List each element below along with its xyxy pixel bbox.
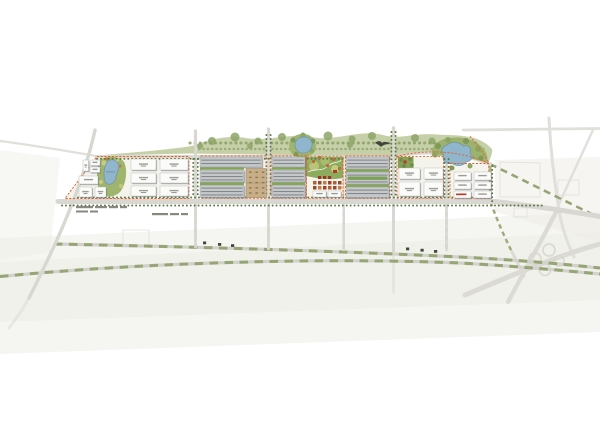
- annotation-text-smudges-rect: [181, 213, 188, 215]
- hall-stripe: [273, 188, 303, 189]
- hall-stripe: [273, 176, 303, 177]
- belt-tree-texture-circle: [368, 132, 376, 140]
- hall-stripe: [201, 173, 242, 174]
- belt-tree-texture-circle: [208, 137, 216, 145]
- grid-cell: [262, 172, 265, 173]
- avenue-dark-marks-rect: [218, 243, 221, 246]
- avenue-dark-marks-rect: [434, 250, 437, 253]
- building-label-mark: [170, 177, 179, 178]
- building-label-mark: [478, 184, 487, 185]
- building-label-mark: [405, 172, 414, 173]
- building-label-mark: [139, 190, 148, 191]
- site-plan-map: [0, 0, 600, 424]
- annotation-text-smudges-rect: [76, 211, 88, 213]
- hall-stripe: [347, 190, 387, 191]
- building-label-mark: [407, 175, 412, 176]
- roof-garden-strips-rect: [272, 182, 305, 185]
- building-label-mark: [458, 184, 467, 185]
- building-label-mark: [431, 175, 436, 176]
- park-greens-circle: [445, 137, 451, 143]
- roof-garden-strips-rect: [200, 167, 244, 169]
- park-greens-circle: [399, 158, 403, 162]
- red-plan-marks: [456, 194, 466, 196]
- campus-cells-rect: [332, 158, 335, 161]
- grid-cell: [318, 181, 322, 185]
- hall-footprint: [272, 157, 305, 167]
- building-label-mark: [141, 179, 146, 180]
- building-label-mark: [84, 164, 87, 165]
- belt-tree-texture-circle: [255, 138, 262, 145]
- belt-tree-texture-circle: [411, 134, 419, 142]
- grid-cell: [318, 186, 322, 190]
- annotation-text-smudges-rect: [90, 211, 98, 213]
- grid-cell: [255, 182, 258, 183]
- hall-stripe: [347, 163, 387, 164]
- grid-cell: [313, 186, 317, 190]
- hall-stripe: [347, 160, 387, 161]
- lakes-path: [295, 137, 312, 153]
- building-label-mark: [170, 190, 179, 191]
- building-label-mark: [171, 192, 176, 193]
- building-label-mark: [141, 166, 146, 167]
- building-label-mark: [170, 163, 179, 164]
- grid-cell: [333, 181, 337, 185]
- building-label-mark: [331, 193, 338, 194]
- park-greens-circle: [463, 138, 469, 144]
- annotation-text-smudges-rect: [152, 213, 168, 215]
- grid-cell: [255, 172, 258, 173]
- building-label-mark: [93, 169, 98, 170]
- campus-cells-rect: [326, 164, 329, 167]
- belt-tree-texture-circle: [324, 132, 333, 141]
- building-label-mark: [171, 179, 176, 180]
- building-label-mark: [478, 193, 487, 194]
- grid-cell: [323, 176, 326, 179]
- grid-cell: [249, 187, 252, 188]
- building-label-mark: [82, 191, 89, 192]
- building-label-mark: [85, 167, 87, 168]
- grid-cell: [249, 192, 252, 193]
- grid-cell: [249, 182, 252, 183]
- hall-stripe: [273, 179, 303, 180]
- grid-cell: [249, 177, 252, 178]
- grid-cell: [333, 186, 337, 190]
- campus-cells-rect: [312, 160, 315, 163]
- grid-cell: [255, 177, 258, 178]
- context-roads-path: [463, 129, 600, 131]
- building-label-mark: [99, 193, 102, 194]
- grid-cell: [323, 181, 327, 185]
- avenue-dark-marks-rect: [406, 248, 409, 251]
- grid-cell: [262, 187, 265, 188]
- hall-stripe: [201, 163, 260, 164]
- park-greens-circle: [119, 184, 123, 188]
- hall-stripe: [273, 194, 303, 195]
- annotation-text-smudges-rect: [106, 171, 115, 173]
- grid-cell: [338, 181, 342, 185]
- building-label-mark: [429, 188, 438, 189]
- grid-cell: [262, 177, 265, 178]
- building-label-mark: [316, 193, 323, 194]
- roof-garden-strips-rect: [272, 167, 305, 169]
- hall-stripe: [201, 160, 260, 161]
- hall-stripe: [347, 175, 387, 176]
- building-label-mark: [171, 166, 176, 167]
- annotation-text-smudges-rect: [170, 213, 179, 215]
- annotation-text-smudges-rect: [95, 206, 107, 208]
- belt-tree-texture-circle: [247, 143, 253, 149]
- building-label-mark: [139, 177, 148, 178]
- park-greens-circle: [468, 164, 473, 169]
- building-label-mark: [458, 175, 467, 176]
- park-greens-circle: [410, 163, 414, 167]
- red-plan-marks-rect: [456, 194, 466, 196]
- avenue-dark-marks-rect: [421, 249, 424, 252]
- annotation-text-smudges-rect: [120, 206, 127, 208]
- campus-cells-rect: [333, 170, 337, 173]
- hall-stripe: [201, 194, 242, 195]
- plan-canvas: [0, 0, 600, 424]
- park-greens-circle: [402, 164, 406, 168]
- grid-cell: [338, 186, 342, 190]
- grid-cell: [255, 187, 258, 188]
- park-greens-circle: [99, 180, 103, 184]
- lakes-path: [442, 142, 472, 165]
- park-greens-circle: [408, 157, 412, 161]
- park-greens-circle: [291, 138, 296, 143]
- hall-stripe: [273, 191, 303, 192]
- hall-stripe: [347, 193, 387, 194]
- park-greens-circle: [403, 160, 406, 163]
- hall-footprint: [200, 157, 262, 167]
- building-label-mark: [84, 193, 88, 194]
- hall-footprint: [346, 187, 389, 198]
- roof-garden-strips-rect: [346, 184, 389, 187]
- avenue-dark-marks-rect: [231, 244, 234, 247]
- building-label-mark: [405, 188, 414, 189]
- grid-cell: [313, 181, 317, 185]
- park-greens-circle: [435, 143, 441, 149]
- hall-stripe: [201, 188, 242, 189]
- grid-cell: [318, 176, 321, 179]
- building-label-mark: [431, 190, 436, 191]
- avenue-dark-marks-rect: [203, 242, 206, 245]
- hall-stripe: [201, 191, 242, 192]
- hall-stripe: [273, 173, 303, 174]
- grid-cell: [328, 181, 332, 185]
- grid-cell: [328, 176, 331, 179]
- building-label-mark: [84, 179, 93, 180]
- grid-cell: [255, 192, 258, 193]
- annotation-text-smudges-rect: [109, 206, 118, 208]
- campus-cells-rect: [318, 156, 321, 159]
- building-label-mark: [429, 172, 438, 173]
- belt-tree-texture-circle: [347, 142, 353, 148]
- belt-tree-texture-circle: [231, 133, 240, 142]
- building-label-mark: [478, 175, 487, 176]
- building-label-mark: [98, 191, 104, 192]
- campus-cells-rect: [338, 167, 341, 170]
- building-label-mark: [141, 192, 146, 193]
- hall-stripe: [273, 163, 303, 164]
- building-label-mark: [93, 162, 98, 163]
- hall-stripe: [273, 160, 303, 161]
- grid-cell: [328, 186, 332, 190]
- roof-garden-strips-rect: [346, 169, 389, 172]
- hall-stripe: [347, 166, 387, 167]
- hall-stripe: [201, 176, 242, 177]
- belt-tree-texture-circle: [349, 136, 356, 143]
- grid-cell: [262, 192, 265, 193]
- belt-tree-texture-circle: [197, 143, 203, 149]
- building-label-mark: [139, 163, 148, 164]
- annotation-text-smudges-rect: [76, 206, 93, 208]
- building-label-mark: [407, 190, 412, 191]
- hall-stripe: [347, 181, 387, 182]
- grid-cell: [323, 186, 327, 190]
- roof-garden-strips-rect: [348, 177, 387, 180]
- belt-tree-texture-circle: [429, 138, 436, 145]
- tan-courtyard-block: [246, 169, 267, 198]
- hall-stripe: [201, 179, 242, 180]
- roof-garden-strips-rect: [200, 182, 244, 185]
- belt-tree-texture-circle: [278, 133, 286, 141]
- grid-cell: [249, 172, 252, 173]
- grid-cell: [262, 182, 265, 183]
